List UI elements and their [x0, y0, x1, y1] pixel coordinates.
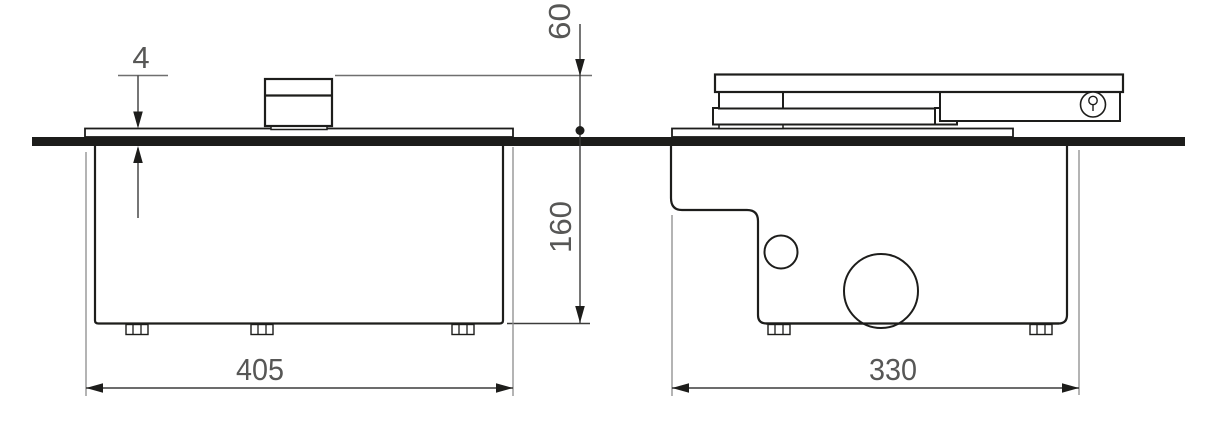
- dimension-label-405: 405: [236, 352, 284, 387]
- small-knockout-circle: [765, 236, 798, 269]
- side-view-foot-left: [126, 325, 148, 335]
- dimension-box-depth: 160: [507, 201, 590, 324]
- side-view-foot-right: [452, 325, 474, 335]
- dimension-label-4: 4: [132, 40, 149, 75]
- end-view-foot-left: [768, 325, 790, 335]
- end-view-cover-plate: [672, 129, 1013, 138]
- side-view-spindle-block: [265, 79, 332, 130]
- side-view-box-outline: [95, 146, 503, 324]
- adjustment-valve-icon: [1081, 92, 1106, 117]
- dimension-label-60: 60: [542, 3, 577, 40]
- top-rail-bar: [715, 75, 1123, 93]
- floor-level-line: [32, 137, 1185, 146]
- end-view-foot-right: [1030, 325, 1052, 335]
- side-view-cement-box: [95, 146, 503, 335]
- side-view-foot-middle: [251, 325, 273, 335]
- dimension-dot: [576, 126, 585, 135]
- dimension-label-160: 160: [543, 201, 578, 253]
- technical-drawing-canvas: 4 60 160 405 330: [0, 0, 1214, 430]
- end-view-closer-assembly: [713, 75, 1123, 129]
- dimension-label-330: 330: [869, 352, 917, 387]
- slide-channel-upper-bar: [719, 92, 940, 109]
- large-knockout-circle: [844, 254, 918, 328]
- spindle-body: [265, 79, 332, 126]
- end-view-cement-box: [671, 146, 1067, 335]
- slide-channel-lower-bar: [713, 108, 935, 125]
- floor-closer-dimension-drawing: 4 60 160 405 330: [0, 0, 1214, 430]
